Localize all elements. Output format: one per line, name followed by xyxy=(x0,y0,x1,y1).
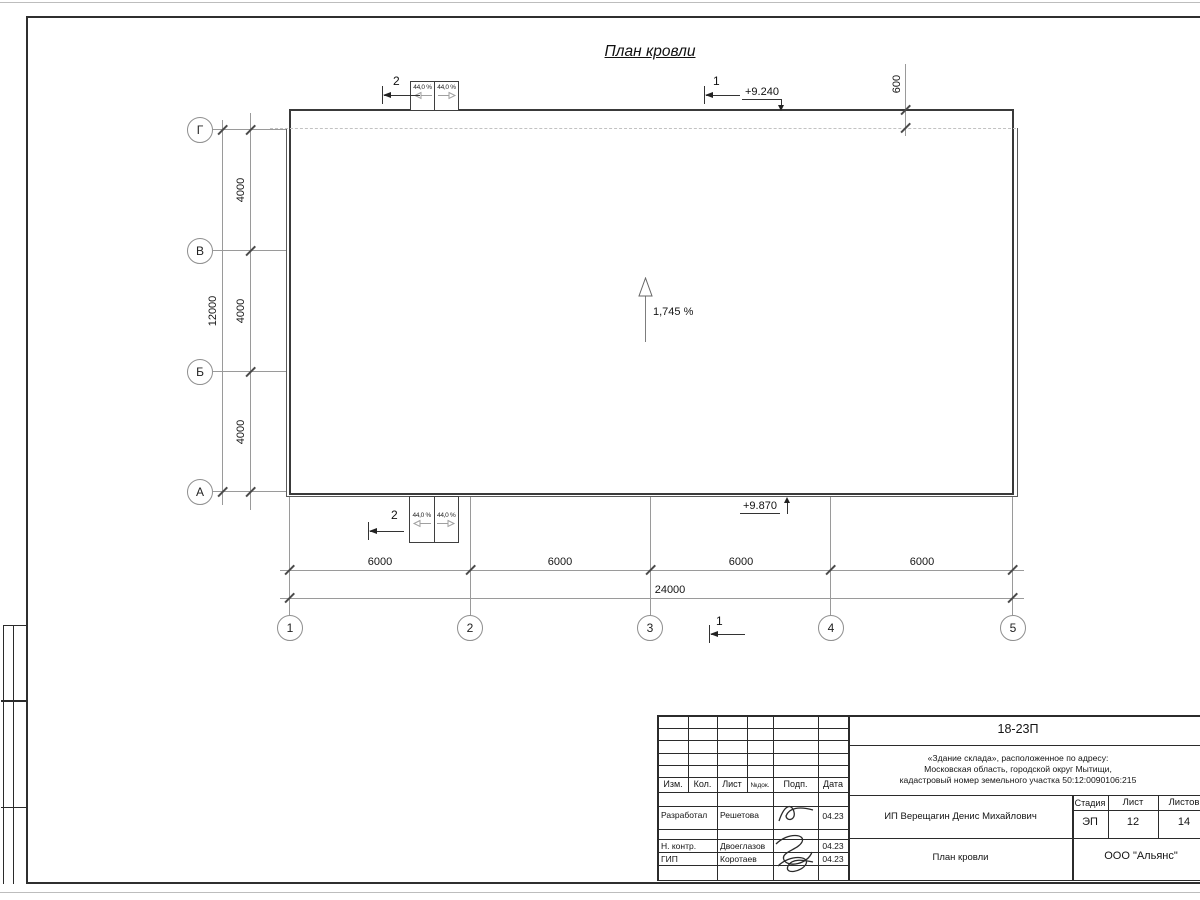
section-mark-2-top-number: 2 xyxy=(393,74,400,88)
canopy-slope-label: 44,0 % xyxy=(437,84,455,91)
canopy-cell: 44,0 % xyxy=(435,497,459,542)
frame-border-left xyxy=(26,16,28,884)
axis-circle-v: В xyxy=(187,238,213,264)
titleblock-line xyxy=(658,852,848,853)
list-label: Лист xyxy=(1108,797,1158,808)
dim-value-4000: 4000 xyxy=(235,286,247,336)
titleblock-line xyxy=(717,716,718,880)
canopy-cell: 44,0 % xyxy=(410,497,435,542)
role-label: Разработал xyxy=(661,810,707,820)
section-mark-line xyxy=(382,86,383,104)
section-mark-2-bottom-number: 2 xyxy=(391,508,398,522)
elevation-leader xyxy=(787,502,788,514)
margin-stamp-line xyxy=(13,625,14,884)
signature-icon xyxy=(771,830,818,877)
col-header-ndok: №док. xyxy=(747,782,773,789)
dim-value-6000: 6000 xyxy=(535,556,585,568)
role-name: Решетова xyxy=(720,810,759,820)
frame-border-top xyxy=(26,16,1200,18)
margin-stamp-line xyxy=(1,807,27,808)
dim-line-vertical-bays xyxy=(250,113,251,510)
section-arrow-icon xyxy=(383,92,391,98)
dim-value-24000: 24000 xyxy=(640,584,700,596)
role-date: 04.23 xyxy=(818,841,848,851)
titleblock-line xyxy=(658,765,848,766)
listov-value: 14 xyxy=(1158,816,1200,828)
section-arrow-icon xyxy=(705,92,713,98)
section-mark-line xyxy=(704,86,705,104)
slope-arrow-right-icon xyxy=(437,91,457,100)
titleblock-line xyxy=(1072,810,1200,811)
role-name: Коротаев xyxy=(720,854,757,864)
titleblock-line xyxy=(658,865,848,866)
canopy-cell: 44,0 % xyxy=(435,82,458,110)
elevation-bottom-value: +9.870 xyxy=(740,500,780,514)
section-mark-line xyxy=(368,522,369,540)
titleblock-line xyxy=(658,753,848,754)
dim-value-6000: 6000 xyxy=(716,556,766,568)
titleblock-line xyxy=(658,792,848,793)
col-header-izm: Изм. xyxy=(658,779,688,789)
margin-stamp-line xyxy=(3,625,27,626)
slope-arrow-right-icon xyxy=(436,519,456,528)
arrow-up-icon xyxy=(784,497,790,503)
dim-line-horizontal-total xyxy=(280,598,1024,599)
role-date: 04.23 xyxy=(818,811,848,821)
project-address-line2: Московская область, городской округ Мыти… xyxy=(848,764,1188,774)
axis-circle-4: 4 xyxy=(818,615,844,641)
axis-circle-5: 5 xyxy=(1000,615,1026,641)
slope-arrow-left-icon xyxy=(412,519,432,528)
titleblock-line xyxy=(658,829,848,830)
roof-outline xyxy=(289,109,1014,495)
project-address-line3: кадастровый номер земельного участка 50:… xyxy=(848,775,1188,785)
slope-value: 1,745 % xyxy=(653,306,693,318)
role-name: Двоеглазов xyxy=(720,841,765,851)
titleblock-line xyxy=(658,806,848,807)
project-address-line1: «Здание склада», расположенное по адресу… xyxy=(848,753,1188,763)
role-date: 04.23 xyxy=(818,854,848,864)
sheet-edge-bottom xyxy=(0,892,1200,893)
organization-name: ООО "Альянс" xyxy=(1072,850,1200,862)
frame-border-bottom xyxy=(26,882,1200,884)
slope-arrow-stem xyxy=(645,295,646,342)
margin-stamp-line xyxy=(1,700,27,702)
list-value: 12 xyxy=(1108,816,1158,828)
titleblock-line xyxy=(848,795,1200,796)
stage-value: ЭП xyxy=(1072,816,1108,828)
col-header-list: Лист xyxy=(717,779,747,789)
dim-value-600: 600 xyxy=(891,59,903,109)
col-header-kol: Кол. xyxy=(688,779,717,789)
role-label: ГИП xyxy=(661,854,678,864)
dim-value-4000: 4000 xyxy=(235,407,247,457)
section-mark-line xyxy=(709,625,710,643)
titleblock-border xyxy=(657,880,1200,882)
axis-circle-3: 3 xyxy=(637,615,663,641)
signature-icon xyxy=(776,800,816,827)
client-name: ИП Верещагин Денис Михайлович xyxy=(849,811,1072,822)
dim-value-6000: 6000 xyxy=(897,556,947,568)
canopy-slope-label: 44,0 % xyxy=(413,84,431,91)
slope-arrow-head-icon xyxy=(637,277,654,297)
axis-circle-2: 2 xyxy=(457,615,483,641)
drawing-sheet: План кровли Г В Б А 4000 4000 4000 12000… xyxy=(0,0,1200,900)
titleblock-line xyxy=(848,838,1200,839)
listov-label: Листов xyxy=(1158,797,1200,808)
doc-code: 18-23П xyxy=(848,722,1188,736)
titleblock-line xyxy=(747,716,748,792)
col-header-data: Дата xyxy=(818,779,848,789)
arrow-down-icon xyxy=(778,105,784,111)
titleblock-border xyxy=(657,715,1200,717)
drawing-title: План кровли xyxy=(550,43,750,61)
titleblock-line xyxy=(658,839,848,840)
canopy-slope-label: 44,0 % xyxy=(413,512,431,519)
axis-circle-g: Г xyxy=(187,117,213,143)
col-header-podp: Подп. xyxy=(773,779,818,789)
canopy-slope-label: 44,0 % xyxy=(437,512,455,519)
titleblock-line xyxy=(658,777,848,778)
dim-value-6000: 6000 xyxy=(355,556,405,568)
role-label: Н. контр. xyxy=(661,841,696,851)
stage-label: Стадия xyxy=(1072,798,1108,808)
dim-line-vertical-total xyxy=(222,120,223,505)
titleblock-line xyxy=(658,740,848,741)
section-mark-1-top-number: 1 xyxy=(713,74,720,88)
titleblock-line xyxy=(658,728,848,729)
elevation-top-value: +9.240 xyxy=(742,86,782,100)
dim-value-4000: 4000 xyxy=(235,165,247,215)
dim-value-12000: 12000 xyxy=(207,286,219,336)
axis-circle-a: А xyxy=(187,479,213,505)
axis-circle-1: 1 xyxy=(277,615,303,641)
section-arrow-icon xyxy=(369,528,377,534)
margin-stamp-line xyxy=(3,625,4,884)
canopy-bottom: 44,0 % 44,0 % xyxy=(409,496,459,543)
dim-line-horizontal-bays xyxy=(280,570,1024,571)
section-arrow-icon xyxy=(710,631,718,637)
sheet-name: План кровли xyxy=(849,852,1072,863)
section-mark-1-bottom-number: 1 xyxy=(716,614,723,628)
titleblock-line xyxy=(848,745,1200,746)
axis-circle-b: Б xyxy=(187,359,213,385)
sheet-edge-top xyxy=(0,2,1200,3)
